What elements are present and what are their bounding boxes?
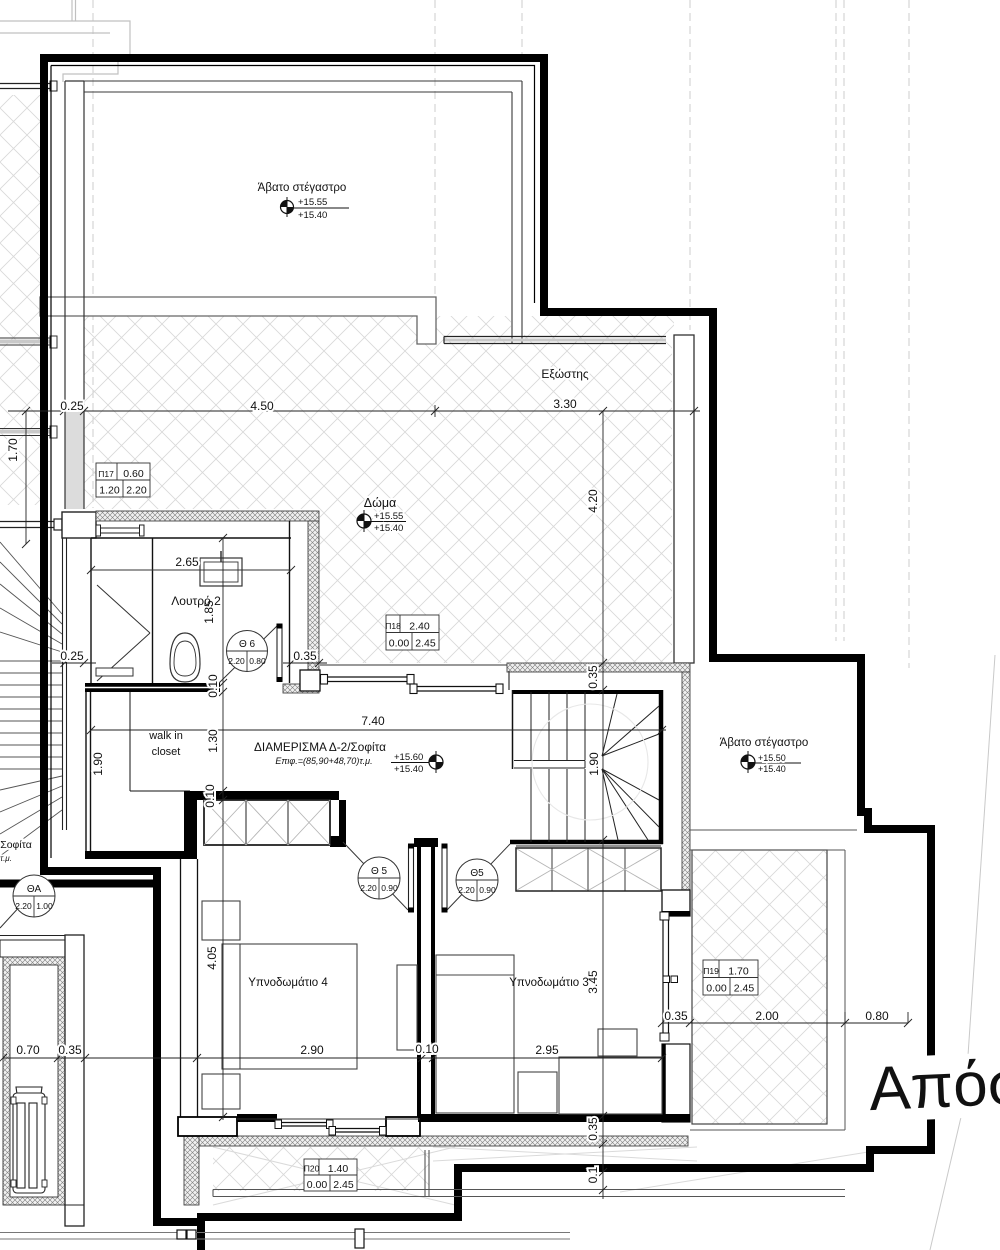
svg-text:1.70: 1.70: [728, 966, 749, 978]
svg-text:1.00: 1.00: [36, 901, 53, 911]
svg-text:2.20: 2.20: [15, 901, 32, 911]
svg-text:Π20: Π20: [304, 1164, 320, 1174]
svg-text:0.60: 0.60: [123, 468, 144, 480]
svg-text:2.65: 2.65: [175, 555, 199, 569]
svg-text:1.90: 1.90: [91, 752, 105, 776]
svg-text:0.35: 0.35: [586, 665, 600, 689]
svg-text:4.05: 4.05: [205, 946, 219, 970]
svg-text:3.30: 3.30: [553, 397, 577, 411]
svg-text:0.90: 0.90: [479, 885, 496, 895]
svg-text:0.35: 0.35: [293, 649, 317, 663]
svg-text:0.00: 0.00: [706, 983, 727, 995]
svg-text:0.1: 0.1: [586, 1166, 600, 1183]
svg-text:2.20: 2.20: [360, 883, 377, 893]
svg-text:τ.μ.: τ.μ.: [0, 854, 12, 863]
svg-text:2.45: 2.45: [333, 1179, 354, 1191]
svg-text:7.40: 7.40: [361, 714, 385, 728]
svg-text:closet: closet: [152, 746, 181, 758]
svg-text:2.00: 2.00: [755, 1009, 779, 1023]
svg-text:0.70: 0.70: [16, 1043, 40, 1057]
svg-text:Δώμα: Δώμα: [364, 496, 397, 510]
svg-text:+15.40: +15.40: [298, 210, 327, 221]
svg-text:2.45: 2.45: [734, 983, 755, 995]
svg-text:Π17: Π17: [98, 469, 114, 479]
svg-text:0.10: 0.10: [203, 784, 217, 808]
svg-text:0.35: 0.35: [58, 1043, 82, 1057]
svg-text:Άβατο στέγαστρο: Άβατο στέγαστρο: [258, 182, 347, 194]
svg-text:Υπνοδωμάτιο 3: Υπνοδωμάτιο 3: [509, 977, 589, 989]
svg-text:Απόστ: Απόστ: [868, 1047, 1000, 1124]
svg-text:2.20: 2.20: [458, 885, 475, 895]
svg-text:Άβατο στέγαστρο: Άβατο στέγαστρο: [720, 737, 809, 749]
svg-text:+15.40: +15.40: [394, 764, 423, 775]
svg-text:Π19: Π19: [703, 966, 719, 976]
svg-text:0.10: 0.10: [415, 1042, 439, 1056]
svg-text:0.25: 0.25: [60, 399, 84, 413]
svg-text:2.90: 2.90: [300, 1043, 324, 1057]
svg-text:walk in: walk in: [148, 730, 183, 742]
svg-text:+15.55: +15.55: [298, 197, 327, 208]
svg-text:0.00: 0.00: [389, 638, 410, 650]
svg-text:+15.40: +15.40: [758, 764, 786, 774]
svg-text:2.20: 2.20: [228, 656, 245, 666]
svg-text:0.10: 0.10: [206, 674, 220, 698]
svg-text:4.20: 4.20: [586, 489, 600, 513]
svg-text:1.90: 1.90: [587, 752, 601, 776]
svg-text:Θ 6: Θ 6: [239, 639, 256, 650]
svg-text:2.95: 2.95: [535, 1043, 559, 1057]
svg-text:0.80: 0.80: [865, 1009, 889, 1023]
svg-text:1.30: 1.30: [206, 729, 220, 753]
svg-text:0.80: 0.80: [249, 656, 266, 666]
svg-text:Επιφ.=(85,90+48,70)τ.μ.: Επιφ.=(85,90+48,70)τ.μ.: [275, 756, 372, 766]
svg-text:+15.40: +15.40: [374, 523, 403, 534]
svg-text:2.45: 2.45: [415, 638, 436, 650]
svg-text:0.90: 0.90: [381, 883, 398, 893]
svg-text:Εξώστης: Εξώστης: [541, 367, 589, 381]
svg-text:4.50: 4.50: [250, 399, 274, 413]
svg-text:2.40: 2.40: [409, 621, 430, 633]
svg-text:+15.55: +15.55: [374, 511, 403, 522]
svg-text:Υπνοδωμάτιο 4: Υπνοδωμάτιο 4: [248, 977, 328, 989]
svg-text:+15.60: +15.60: [394, 752, 423, 763]
svg-text:Θ5: Θ5: [470, 868, 484, 879]
svg-text:0.25: 0.25: [60, 649, 84, 663]
svg-text:ΘΑ: ΘΑ: [27, 884, 42, 895]
svg-text:Σοφίτα: Σοφίτα: [0, 839, 32, 851]
svg-text:1.20: 1.20: [99, 485, 120, 497]
svg-text:0.00: 0.00: [307, 1179, 328, 1191]
svg-text:+15.50: +15.50: [758, 753, 786, 763]
svg-text:Λουτρό 2: Λουτρό 2: [171, 594, 221, 608]
svg-text:Θ 5: Θ 5: [371, 866, 388, 877]
svg-text:2.20: 2.20: [126, 485, 147, 497]
svg-text:0.35: 0.35: [664, 1009, 688, 1023]
svg-text:1.70: 1.70: [6, 438, 20, 462]
svg-text:ΔΙΑΜΕΡΙΣΜΑ Δ-2/Σοφίτα: ΔΙΑΜΕΡΙΣΜΑ Δ-2/Σοφίτα: [254, 740, 386, 754]
svg-text:1.40: 1.40: [328, 1163, 349, 1175]
svg-text:0.35: 0.35: [586, 1117, 600, 1141]
svg-text:Π18: Π18: [385, 621, 401, 631]
